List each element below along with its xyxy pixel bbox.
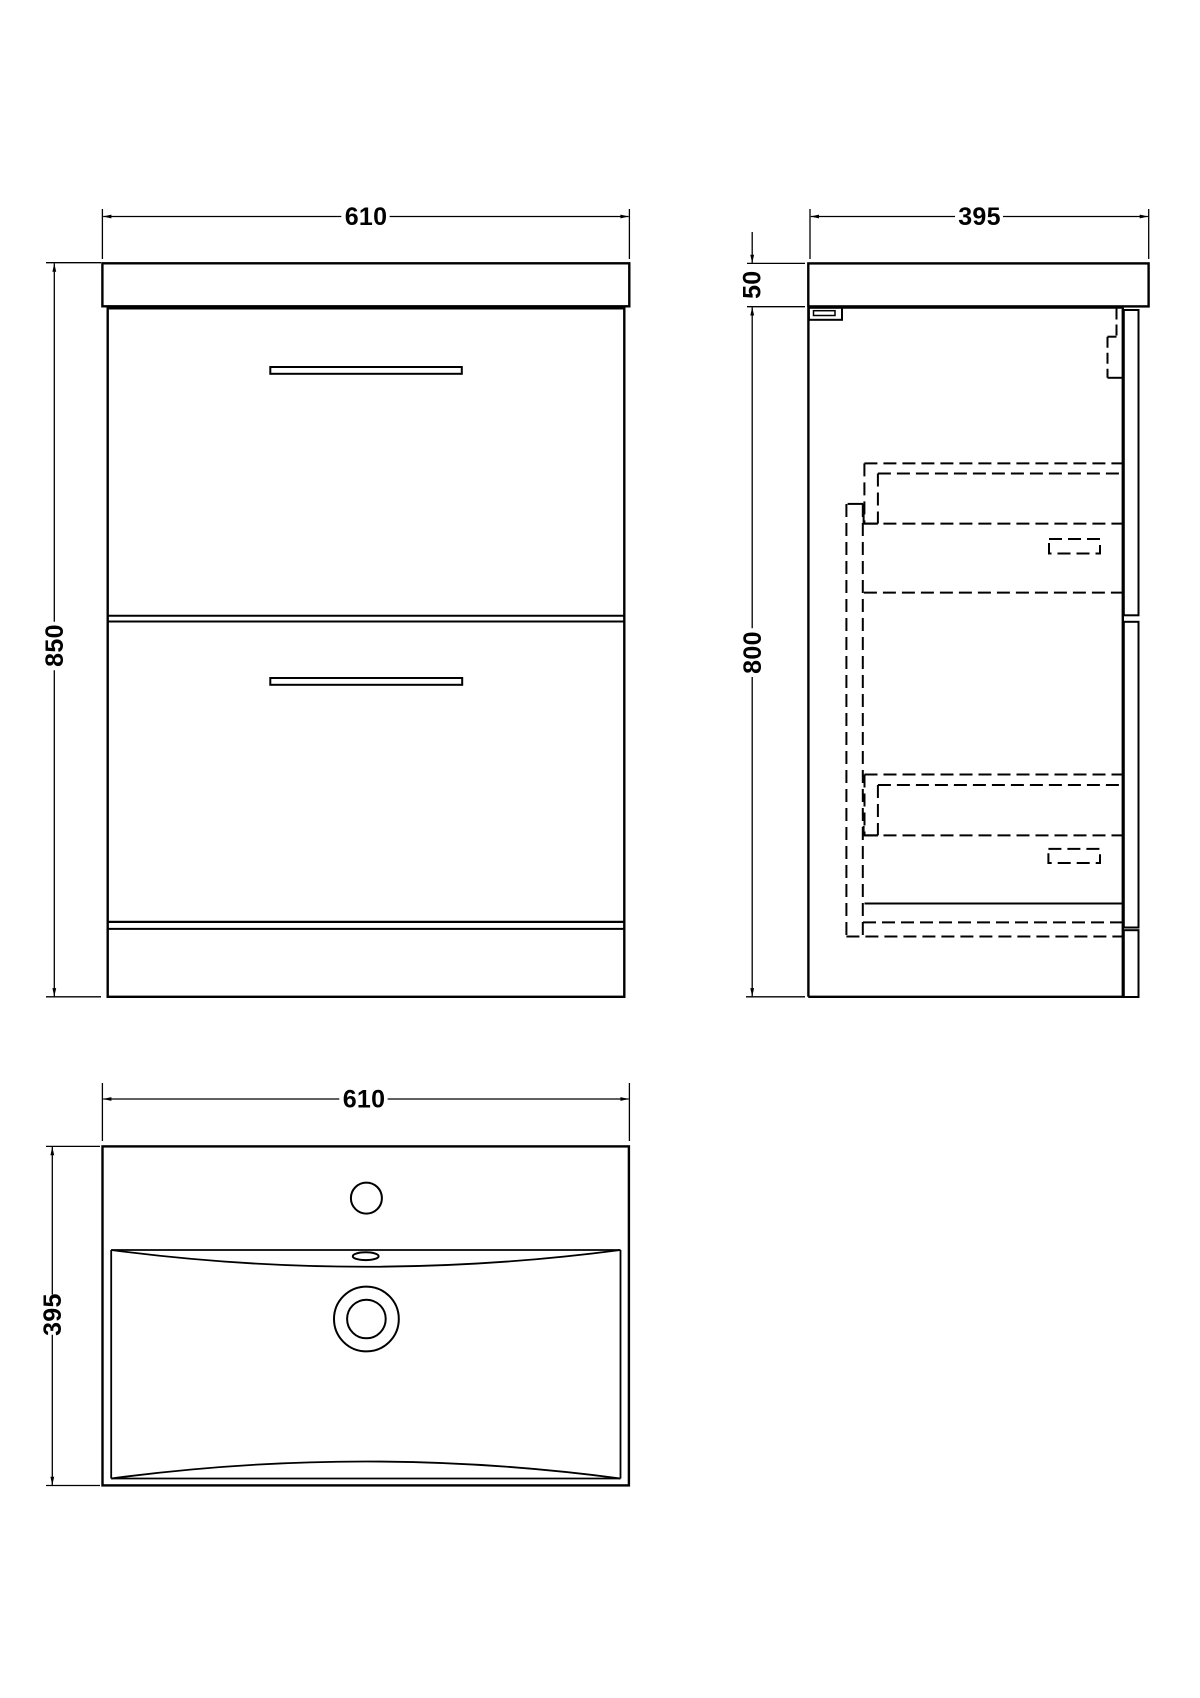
svg-text:850: 850 [41, 624, 69, 667]
svg-text:395: 395 [39, 1293, 67, 1336]
svg-text:395: 395 [958, 203, 1001, 231]
svg-text:50: 50 [739, 270, 767, 298]
svg-text:610: 610 [345, 203, 388, 231]
svg-text:800: 800 [739, 631, 767, 674]
svg-text:610: 610 [343, 1086, 386, 1114]
